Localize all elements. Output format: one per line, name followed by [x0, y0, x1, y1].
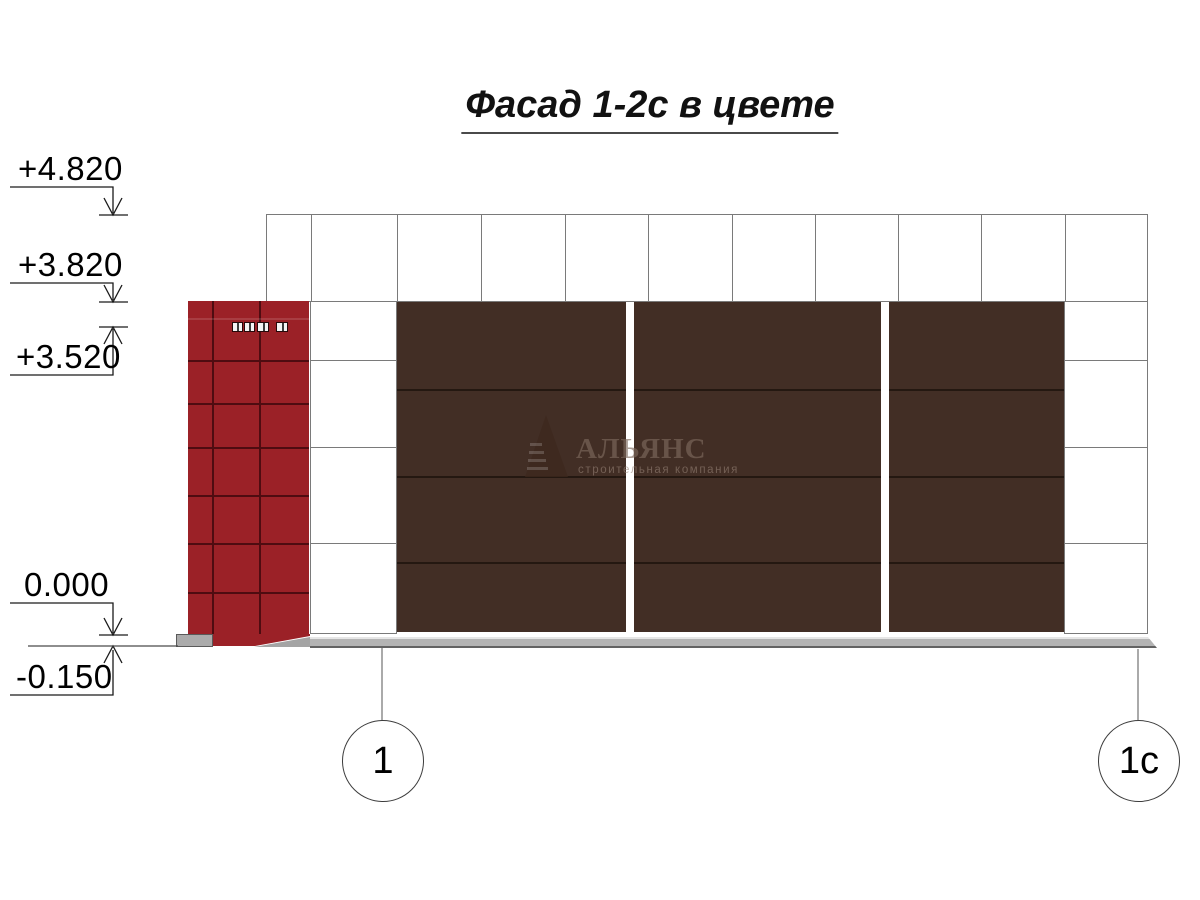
- dimension-lines: [0, 0, 1200, 900]
- elevation-mark-0000: [10, 603, 128, 635]
- axis-marker-1: 1: [342, 720, 424, 802]
- elevation-mark-4820: [10, 187, 128, 215]
- elevation-label: 0.000: [24, 566, 109, 604]
- axis-marker-label: 1с: [1119, 740, 1159, 783]
- axis-marker-1c: 1с: [1098, 720, 1180, 802]
- axis-marker-label: 1: [372, 740, 393, 783]
- elevation-label: +3.820: [18, 246, 123, 284]
- elevation-label: -0.150: [16, 658, 113, 696]
- facade-drawing: Фасад 1-2с в цвете: [0, 0, 1200, 900]
- elevation-label: +4.820: [18, 150, 123, 188]
- elevation-label: +3.520: [16, 338, 121, 376]
- elevation-mark-3820: [10, 283, 128, 302]
